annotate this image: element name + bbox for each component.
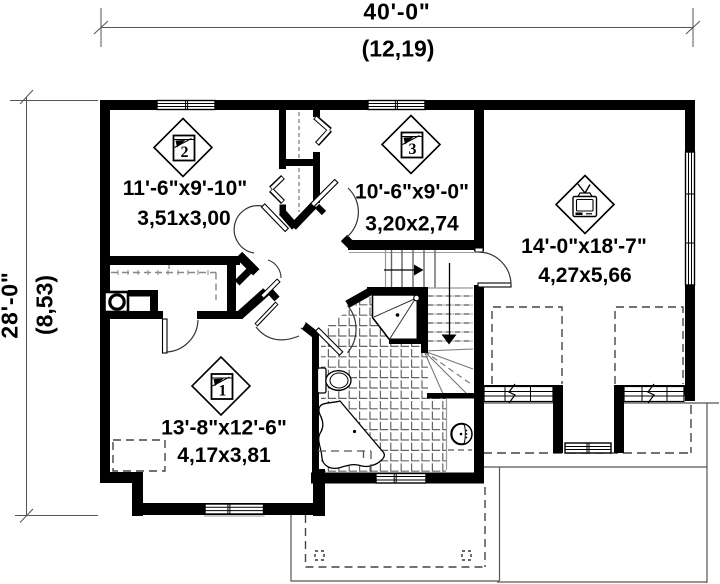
svg-text:11'-6"x9'-10": 11'-6"x9'-10" xyxy=(123,177,247,200)
svg-text:(12,19): (12,19) xyxy=(362,36,435,62)
svg-text:3: 3 xyxy=(409,141,417,158)
svg-text:14'-0"x18'-7": 14'-0"x18'-7" xyxy=(521,235,647,258)
svg-text:2: 2 xyxy=(181,144,189,161)
svg-text:(8,53): (8,53) xyxy=(32,275,58,335)
svg-text:3,51x3,00: 3,51x3,00 xyxy=(137,207,230,230)
svg-text:40'-0": 40'-0" xyxy=(363,0,430,25)
svg-text:13'-8"x12'-6": 13'-8"x12'-6" xyxy=(161,417,287,440)
svg-text:4,17x3,81: 4,17x3,81 xyxy=(177,444,271,467)
svg-text:3,20x2,74: 3,20x2,74 xyxy=(365,213,459,236)
svg-text:28'-0": 28'-0" xyxy=(0,271,23,338)
svg-text:1: 1 xyxy=(219,383,227,400)
svg-text:4,27x5,66: 4,27x5,66 xyxy=(538,264,631,287)
svg-text:10'-6"x9'-0": 10'-6"x9'-0" xyxy=(355,181,469,204)
